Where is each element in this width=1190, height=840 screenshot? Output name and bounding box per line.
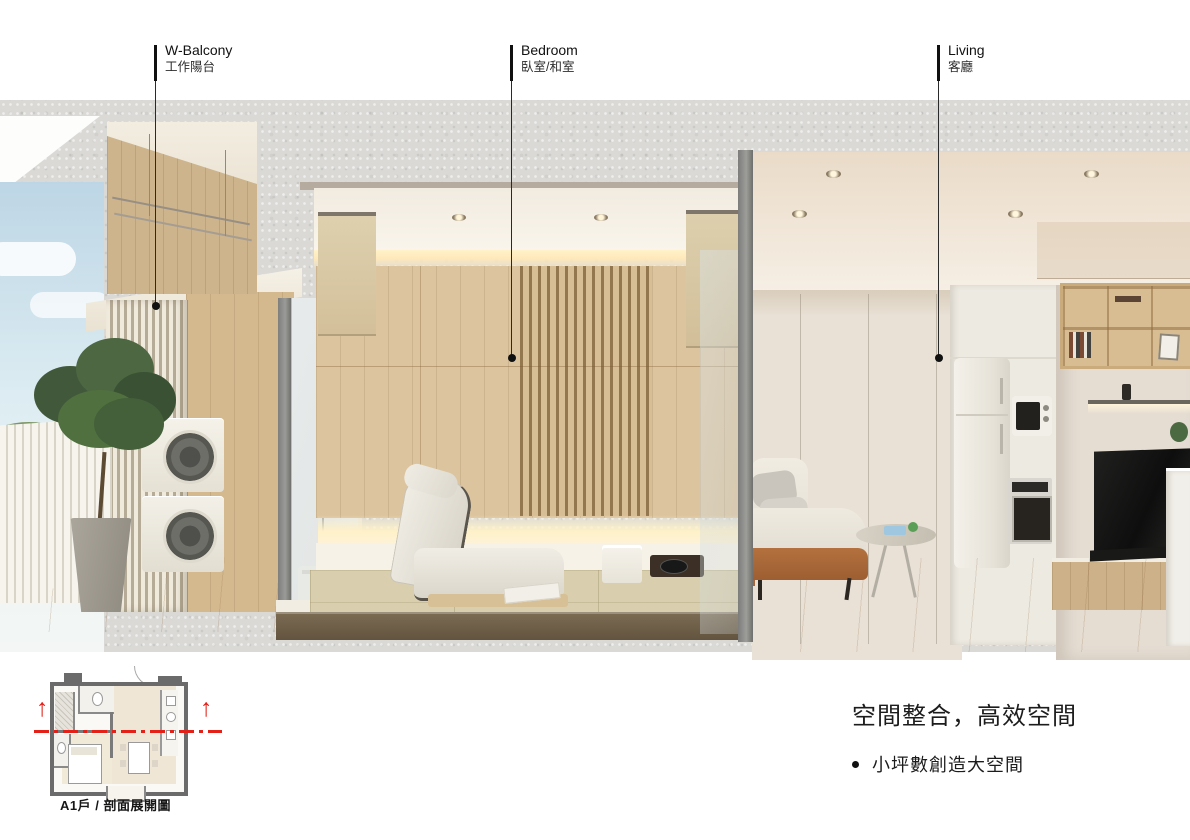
- plan-outline: [50, 682, 188, 796]
- bullet-dot-icon: [852, 761, 859, 768]
- callout-w-balcony: W-Balcony 工作陽台: [154, 42, 232, 75]
- downlight-icon: [452, 214, 466, 221]
- floor-plan: ↑ ↑: [30, 668, 226, 800]
- bedroom-base-glow: [318, 515, 738, 545]
- plan-interior-wall: [110, 712, 113, 758]
- microwave: [1012, 396, 1052, 436]
- ac-unit-bottom: [142, 496, 224, 572]
- callout-living: Living 客廳: [937, 42, 985, 75]
- plan-bathroom: [78, 686, 114, 714]
- table-tray: [884, 526, 906, 535]
- drying-rack-rod: [114, 213, 252, 242]
- callout-label-zh: 臥室/和室: [521, 60, 578, 76]
- summary-bullet-text: 小坪數創造大空間: [872, 751, 1024, 777]
- books: [1069, 332, 1091, 358]
- summary-block: 空間整合，高效空間 小坪數創造大空間: [852, 696, 1182, 777]
- plant-foliage: [28, 332, 178, 462]
- summary-bullet: 小坪數創造大空間: [852, 751, 1182, 777]
- downlight-icon: [1008, 210, 1023, 218]
- laundry-ceiling-wedge: [107, 122, 257, 222]
- door-frame-post: [278, 298, 291, 638]
- callout-label-zh: 客廳: [948, 60, 985, 76]
- callout-dot-icon: [935, 354, 943, 362]
- book-flat: [1115, 296, 1141, 302]
- laundry-cutout: [107, 122, 257, 294]
- plan-caption: A1戶 / 剖面展開圖: [60, 795, 171, 814]
- diffuser-bottle: [1122, 384, 1131, 400]
- cloud: [0, 242, 76, 276]
- platform-fascia: [276, 612, 746, 640]
- callout-leader-line: [155, 45, 156, 307]
- photo-frame: [1158, 333, 1180, 360]
- partition-post: [738, 150, 753, 642]
- plan-kitchen-strip: [160, 690, 178, 756]
- downlight-icon: [1084, 170, 1099, 178]
- console-plant: [1170, 422, 1188, 442]
- callout-tick: [154, 45, 157, 81]
- downlight-icon: [594, 214, 608, 221]
- sofa-leg: [758, 580, 762, 600]
- callout-bedroom: Bedroom 臥室/和室: [510, 42, 578, 75]
- callout-tick: [510, 45, 513, 81]
- plan-dining-table-icon: [128, 742, 150, 774]
- callout-label-en: Living: [948, 42, 985, 60]
- downlight-icon: [792, 210, 807, 218]
- section-cut-line: [34, 730, 222, 733]
- downlight-icon: [826, 170, 841, 178]
- partition-glass: [700, 250, 740, 634]
- refrigerator: [954, 358, 1010, 568]
- speaker-box: [602, 545, 642, 583]
- bedroom-ceiling: [314, 188, 738, 252]
- wood-slat-panel: [520, 266, 652, 516]
- callout-dot-icon: [152, 302, 160, 310]
- table-plant: [908, 522, 918, 532]
- callout-label-en: Bedroom: [521, 42, 578, 60]
- presentation-page: W-Balcony 工作陽台 Bedroom 臥室/和室 Living 客廳 ↑…: [0, 0, 1190, 840]
- callout-leader-line: [938, 45, 939, 359]
- ac-fan-icon: [163, 509, 217, 563]
- callout-leader-line: [511, 45, 512, 359]
- ceiling-bulkhead: [1037, 222, 1190, 279]
- drying-rack-cable: [225, 150, 226, 236]
- concrete-band: [0, 100, 1190, 652]
- plan-bed-icon: [68, 744, 102, 784]
- callout-dot-icon: [508, 354, 516, 362]
- section-arrow-up-icon: ↑: [200, 696, 213, 721]
- callout-label-en: W-Balcony: [165, 42, 232, 60]
- plan-laundry: [55, 692, 75, 732]
- living-ceiling: [752, 152, 1190, 292]
- bedroom-frame-post-left: [300, 250, 315, 632]
- cubby-shelves: [1060, 283, 1190, 369]
- summary-title: 空間整合，高效空間: [852, 696, 1182, 731]
- built-in-oven: [1008, 478, 1052, 544]
- bedroom-wood-wall: [316, 266, 738, 518]
- bedroom-roller-shade-left: [318, 212, 376, 336]
- drying-rack-cable: [149, 134, 150, 216]
- shelf-led-glow: [1088, 404, 1190, 414]
- plan-toilet-icon: [92, 692, 103, 706]
- section-arrow-up-icon: ↑: [36, 696, 49, 721]
- record-player: [650, 555, 704, 577]
- drying-rack-rod: [112, 197, 250, 226]
- callout-tick: [937, 45, 940, 81]
- callout-label-zh: 工作陽台: [165, 60, 232, 76]
- sofa-frame: [740, 548, 868, 580]
